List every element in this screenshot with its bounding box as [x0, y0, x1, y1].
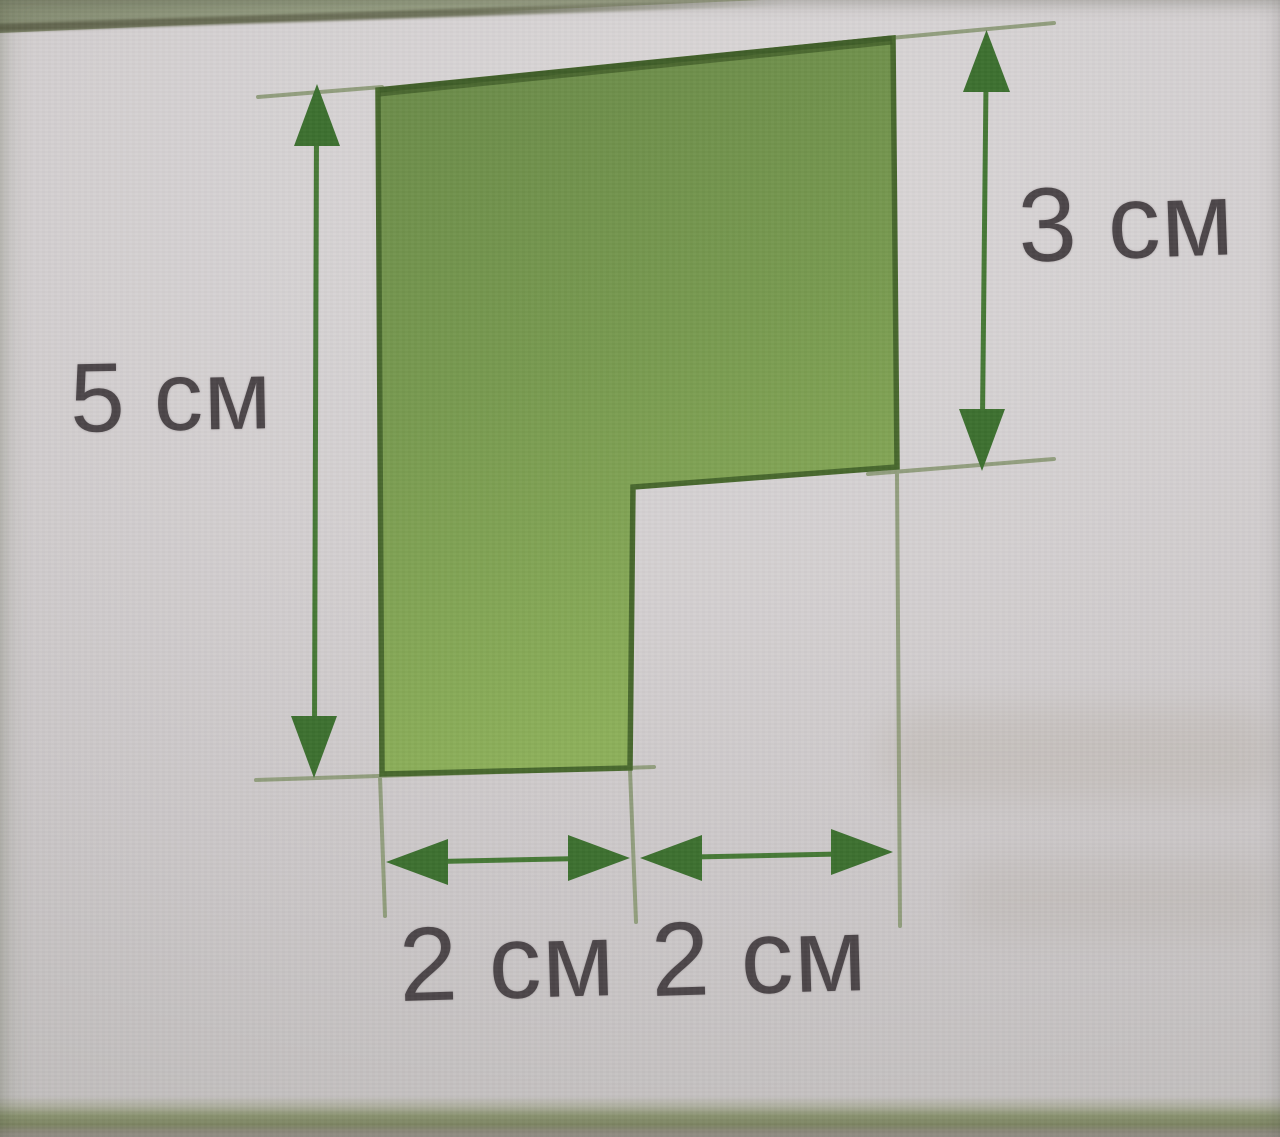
extension-line-below-right-edge	[897, 469, 900, 926]
dimension-arrow-3cm	[959, 30, 1010, 471]
dimension-label-2cm-right: 2 см	[650, 902, 869, 1013]
arrow-line	[315, 128, 317, 732]
arrowhead-up-icon	[963, 30, 1010, 92]
textbook-photo: 5 см 3 см 2 см 2 см	[0, 0, 1280, 1137]
arrowhead-left-icon	[640, 835, 702, 881]
extension-line-below-step-edge	[630, 770, 636, 922]
arrowhead-down-icon	[291, 716, 337, 778]
arrow-line	[438, 859, 582, 862]
arrowhead-left-icon	[386, 839, 448, 885]
arrowhead-right-icon	[568, 835, 630, 881]
dimension-arrow-2cm-left	[386, 835, 630, 885]
extension-line-below-left-edge	[380, 776, 385, 916]
dimension-label-3cm: 3 см	[1016, 166, 1236, 278]
dimension-label-2cm-left: 2 см	[398, 907, 617, 1018]
page-bottom-edge-band	[0, 1096, 1280, 1137]
arrow-line	[693, 854, 840, 857]
green-step-shape	[378, 38, 897, 774]
dimension-arrow-2cm-right	[640, 829, 893, 881]
arrow-line	[983, 84, 987, 417]
dimension-label-5cm: 5 см	[69, 345, 273, 447]
arrowhead-right-icon	[831, 829, 893, 875]
dimension-arrow-5cm	[291, 84, 340, 778]
